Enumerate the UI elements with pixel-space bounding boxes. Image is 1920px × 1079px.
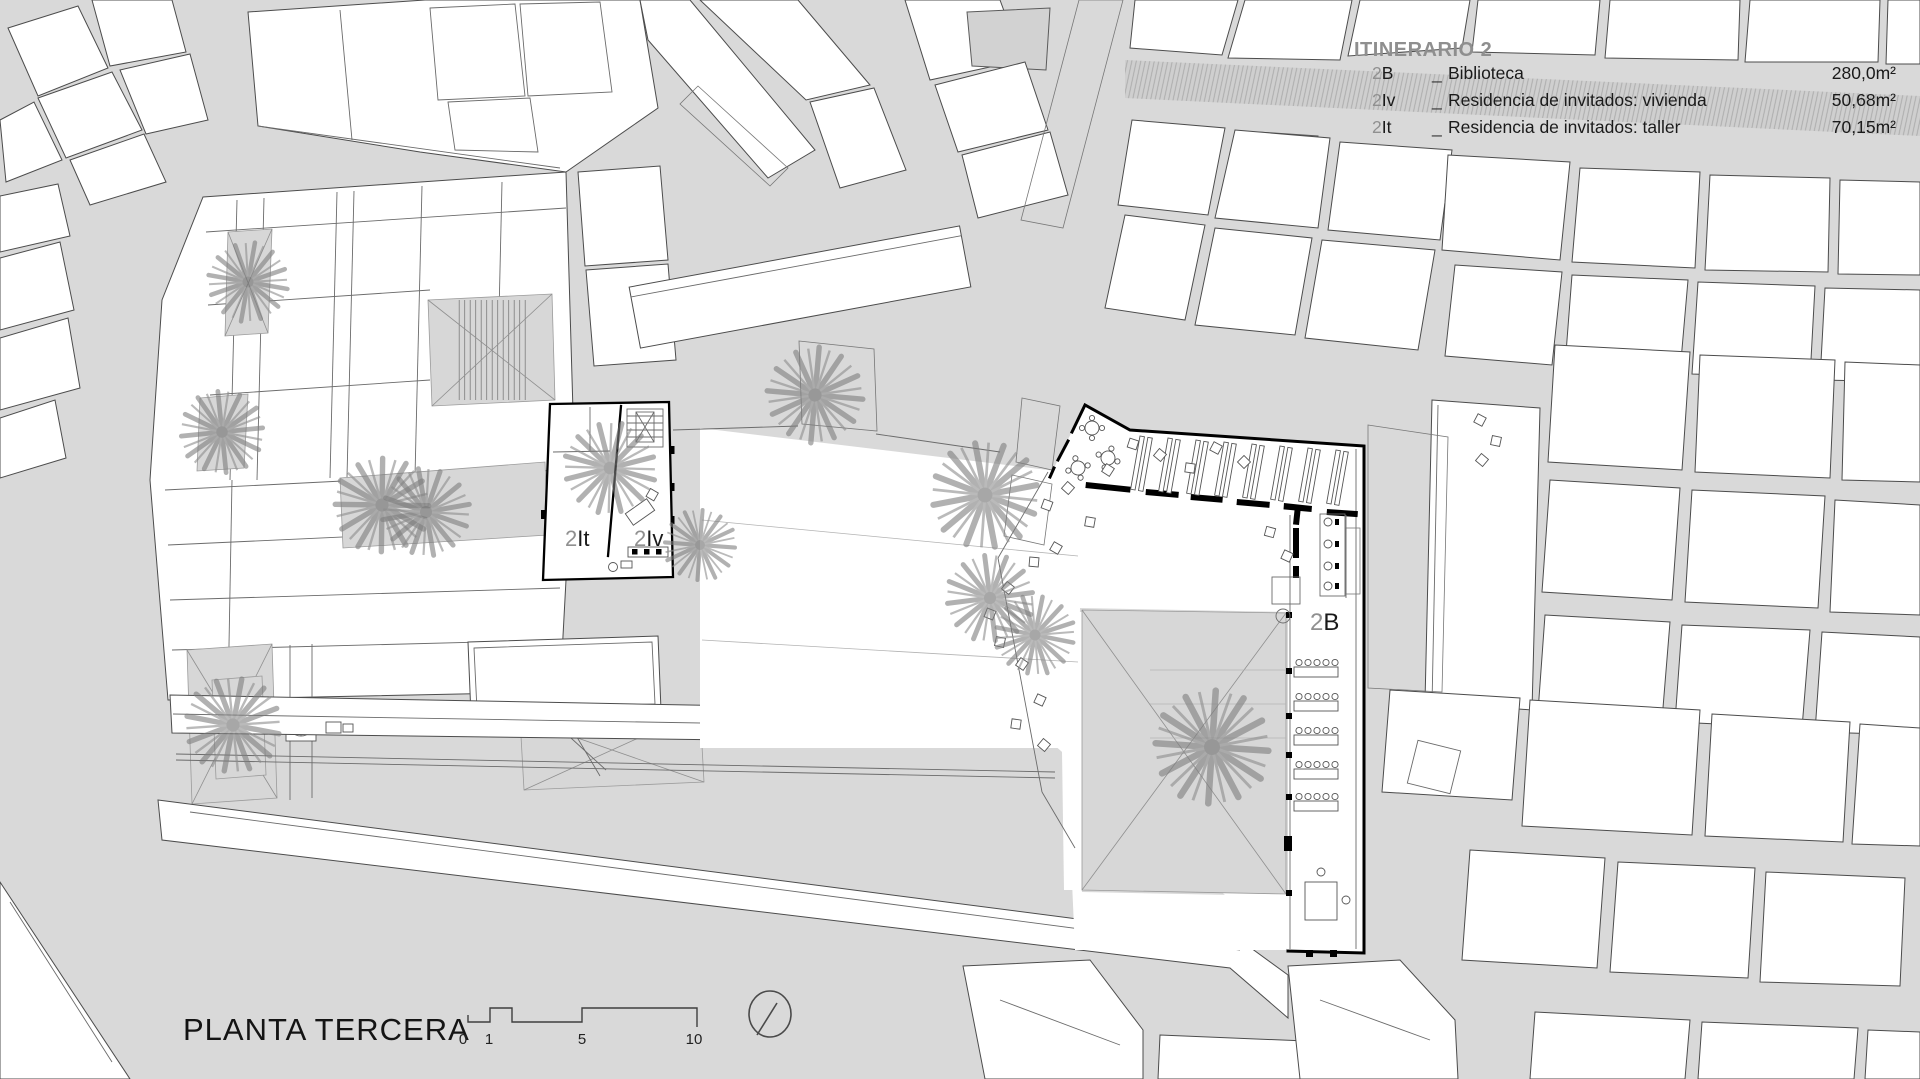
svg-text:_: _ <box>1431 117 1442 138</box>
scale-tick: 10 <box>686 1031 703 1048</box>
plan-label-2iv: 2Iv <box>634 526 663 551</box>
scale-tick: 5 <box>578 1031 586 1048</box>
plan-label-2b: 2B <box>1310 609 1339 636</box>
plan-label-2it: 2It <box>565 526 589 551</box>
svg-text:2It: 2It <box>1372 117 1392 137</box>
svg-text:2Iv: 2Iv <box>1372 90 1396 110</box>
svg-text:50,68m²: 50,68m² <box>1832 90 1896 110</box>
roof-hatch <box>428 294 555 406</box>
floor-plan-page: 2It 2Iv <box>0 0 1920 1079</box>
legend-title: ITINERARIO 2 <box>1354 39 1492 61</box>
cart-icon <box>326 722 341 733</box>
svg-text:Biblioteca: Biblioteca <box>1448 63 1524 83</box>
svg-text:2B: 2B <box>1372 63 1393 83</box>
svg-text:_: _ <box>1431 90 1442 111</box>
page-title: PLANTA TERCERA <box>183 1012 470 1047</box>
svg-text:70,15m²: 70,15m² <box>1832 117 1896 137</box>
svg-text:Residencia de invitados: vivie: Residencia de invitados: vivienda <box>1448 90 1707 110</box>
floor-plan-canvas: 2It 2Iv <box>0 0 1920 1079</box>
svg-text:_: _ <box>1431 63 1442 84</box>
guest-residence-building: 2It 2Iv <box>541 402 675 580</box>
svg-text:Residencia de invitados: talle: Residencia de invitados: taller <box>1448 117 1681 137</box>
svg-text:280,0m²: 280,0m² <box>1832 63 1896 83</box>
library-building: 2B <box>1050 405 1364 957</box>
scale-tick: 0 <box>459 1031 467 1048</box>
scale-tick: 1 <box>485 1031 493 1048</box>
